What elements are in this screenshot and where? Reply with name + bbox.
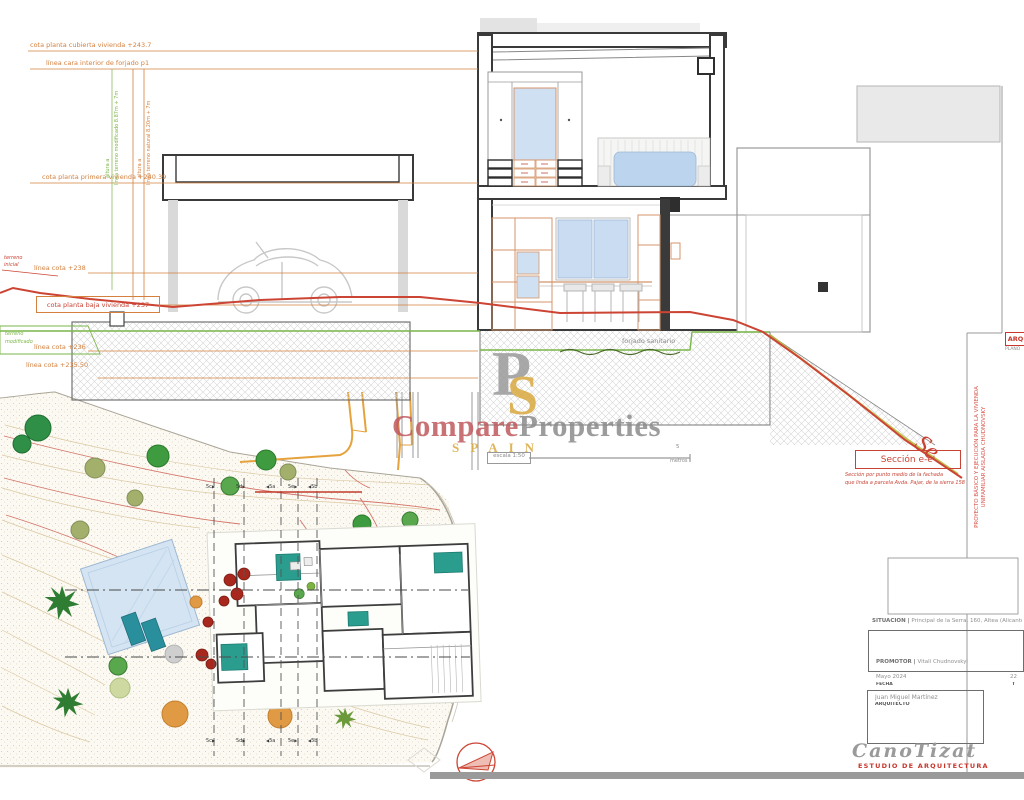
- cota-cubierta-label: cota planta cubierta vivienda +243.7: [30, 42, 151, 49]
- titleblock-num: 22: [1010, 674, 1017, 680]
- marker-arrow-icon: ▶: [212, 738, 215, 743]
- marker-arrow-icon: ▶: [294, 738, 297, 743]
- marker-5b-bottom: ◀5b: [308, 738, 317, 744]
- project-title-vertical: PROYECTO BÁSICO Y EJECUCIÓN PARA LA VIVI…: [974, 352, 992, 562]
- marker-5c-bottom: 5c▶: [206, 738, 215, 744]
- altura-verde-pre-label: altura a: [106, 148, 111, 178]
- terreno-modificado-label-2: modificado: [5, 340, 33, 346]
- terreno-inicial-label-2: inicial: [4, 263, 19, 269]
- project-title-line1: PROYECTO BÁSICO Y EJECUCIÓN PARA LA VIVI…: [974, 352, 981, 562]
- terreno-inicial-label-1: terreno: [4, 256, 22, 262]
- marker-5e-bottom: 5e▶: [288, 738, 297, 744]
- marker-arrow-icon: ▶: [242, 484, 245, 489]
- marker-5c-top: 5c▶: [206, 484, 215, 490]
- marker-arrow-icon: ▶: [212, 484, 215, 489]
- seccion-caption-2: que linda a parcela Avda. Pajar, de la s…: [845, 481, 965, 487]
- estudio-subtitle: ESTUDIO DE ARQUITECTURA: [858, 762, 989, 770]
- marker-5e-top: 5e▶: [288, 484, 297, 490]
- linea-forjado-label: línea cara interior de forjado p1: [46, 60, 149, 67]
- linea-23550-label: línea cota +235.50: [26, 362, 88, 369]
- titleblock-t: T: [1012, 682, 1015, 687]
- architectural-sheet: cota planta cubierta vivienda +243.7 lín…: [0, 0, 1024, 800]
- kitchen: [492, 205, 680, 330]
- altura-naranja-pre-label: altura a: [138, 148, 143, 178]
- marker-5a-top: ◀5a: [266, 484, 275, 490]
- watermark-properties: Properties: [519, 408, 661, 443]
- altura-verde-label: línea terreno modificado 8.87m + 7m: [115, 75, 120, 185]
- altura-naranja-label: línea terreno natural 8.20m + 7m: [147, 75, 152, 185]
- bedroom: [598, 58, 714, 186]
- arq-badge: ARQ: [1005, 332, 1024, 346]
- cota-baja-label: cota planta baja vivienda +237: [47, 301, 149, 309]
- linea-236-label: línea cota +236: [34, 344, 86, 351]
- forjado-sanitario-label: forjado sanitario: [622, 338, 675, 345]
- situacion-label: SITUACIÓN |: [872, 618, 910, 624]
- plano-label: PLANO: [1005, 347, 1020, 352]
- promotor-box: [868, 630, 1024, 672]
- marker-5d-top: 5d▶: [236, 484, 245, 490]
- estudio-logo: CanoTizat: [852, 740, 977, 762]
- closet: [488, 72, 582, 186]
- promotor-label: PROMOTOR |: [876, 659, 916, 665]
- fecha-value: Mayo 2024: [876, 674, 906, 680]
- marker-arrow-icon: ▶: [294, 484, 297, 489]
- marker-5a-bottom: ◀5a: [266, 738, 275, 744]
- house-section: [478, 18, 1000, 332]
- cota-baja-box: cota planta baja vivienda +237: [36, 296, 160, 313]
- watermark-compare: Compare: [392, 408, 519, 443]
- terreno-modificado-label-1: terreno: [5, 332, 23, 338]
- promotor-value: Vitali Chudnovskyi: [917, 659, 968, 665]
- marker-arrow-icon: ▶: [242, 738, 245, 743]
- linea-238-label: línea cota +238: [34, 265, 86, 272]
- seccion-title-box: Sección e-e': [855, 450, 961, 469]
- carport-section: [163, 155, 413, 313]
- situacion-value: Principal de la Serra, 160, Altea (Alica…: [911, 618, 1022, 624]
- arquitecto-nombre: Juan Miguel Martínez: [875, 694, 938, 701]
- arquitecto-titulo: ARQUITECTO: [875, 702, 910, 707]
- site-plan: [0, 392, 495, 781]
- fecha-label: FECHA: [876, 682, 893, 687]
- house-floor-plan: [207, 524, 481, 711]
- scale-value: 5: [676, 444, 680, 450]
- project-title-line2: UNIFAMILIAR AISLADA CHUDNOVSKY: [981, 352, 988, 562]
- marker-5d-bottom: 5d▶: [236, 738, 245, 744]
- scale-label: escala 1:50: [487, 452, 531, 464]
- marker-5b-top: ◀5b: [308, 484, 317, 490]
- scale-unit: metros: [670, 459, 688, 465]
- seccion-caption-1: Sección por punto medio de la fachada: [845, 473, 943, 479]
